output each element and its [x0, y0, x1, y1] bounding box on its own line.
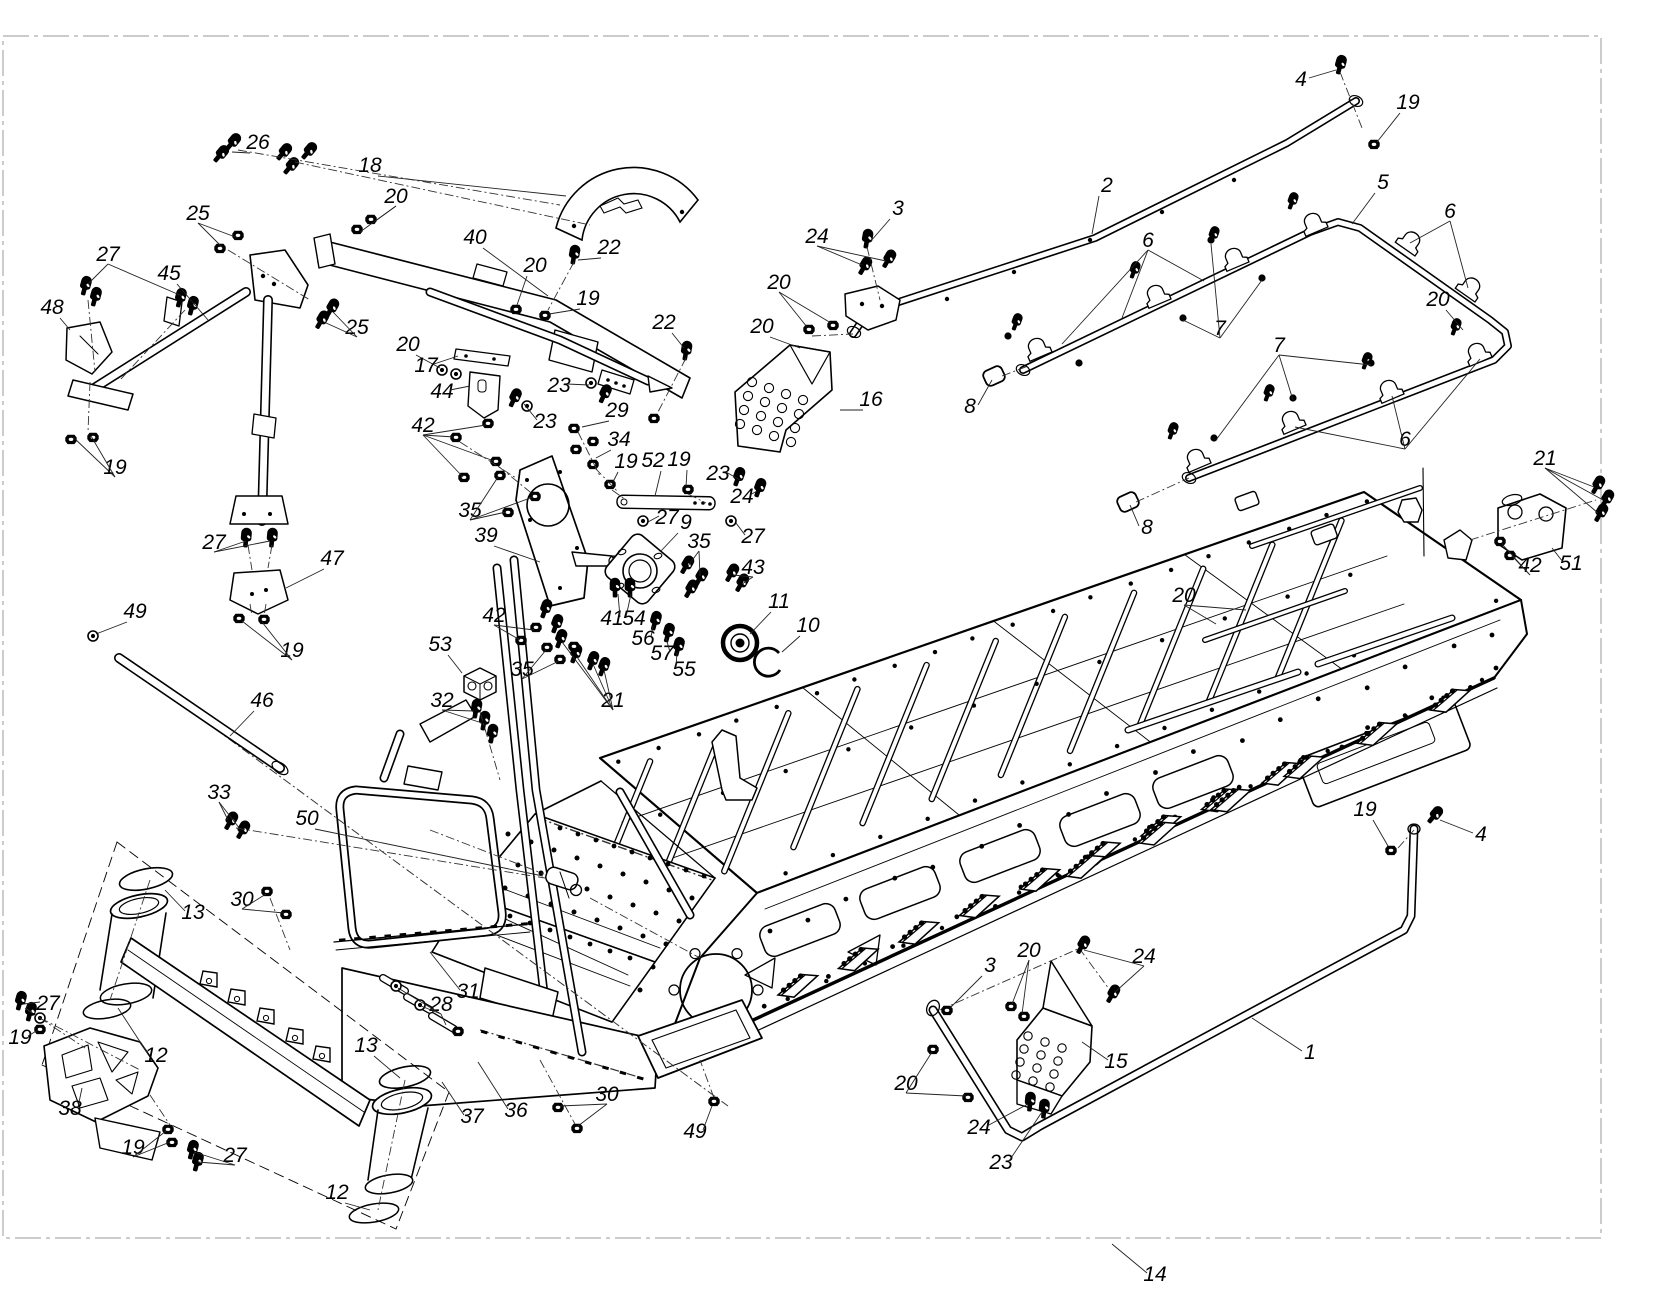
svg-text:1: 1	[1304, 1041, 1316, 1064]
svg-text:47: 47	[320, 547, 345, 570]
svg-text:44: 44	[430, 380, 453, 403]
svg-text:29: 29	[604, 399, 629, 422]
svg-text:19: 19	[121, 1136, 145, 1159]
svg-text:25: 25	[185, 202, 210, 225]
svg-text:20: 20	[395, 333, 420, 356]
svg-text:20: 20	[1425, 288, 1450, 311]
svg-text:22: 22	[651, 311, 676, 334]
svg-text:23: 23	[988, 1151, 1013, 1174]
svg-text:20: 20	[1171, 584, 1196, 607]
svg-text:27: 27	[654, 506, 680, 529]
svg-text:4: 4	[1475, 823, 1487, 846]
svg-text:19: 19	[576, 287, 600, 310]
svg-text:24: 24	[966, 1116, 990, 1139]
svg-text:18: 18	[358, 154, 382, 177]
svg-text:55: 55	[672, 658, 696, 681]
svg-text:34: 34	[607, 428, 630, 451]
svg-text:20: 20	[383, 185, 408, 208]
svg-text:10: 10	[796, 614, 820, 637]
svg-text:13: 13	[181, 901, 205, 924]
svg-text:48: 48	[40, 296, 64, 319]
svg-text:39: 39	[474, 524, 498, 547]
svg-text:53: 53	[428, 633, 452, 656]
svg-text:22: 22	[596, 236, 621, 259]
svg-text:6: 6	[1444, 200, 1456, 223]
svg-text:52: 52	[641, 449, 665, 472]
svg-text:57: 57	[650, 642, 675, 665]
svg-text:38: 38	[58, 1097, 82, 1120]
svg-text:49: 49	[683, 1120, 707, 1143]
svg-text:14: 14	[1143, 1263, 1166, 1286]
svg-text:12: 12	[144, 1044, 168, 1067]
svg-text:5: 5	[1377, 171, 1389, 194]
svg-text:23: 23	[705, 462, 730, 485]
svg-text:19: 19	[614, 450, 638, 473]
svg-text:23: 23	[532, 410, 557, 433]
svg-text:26: 26	[245, 131, 270, 154]
svg-text:19: 19	[1396, 91, 1420, 114]
svg-text:7: 7	[1273, 334, 1286, 357]
svg-text:6: 6	[1142, 229, 1154, 252]
svg-text:30: 30	[230, 888, 254, 911]
svg-text:12: 12	[325, 1181, 349, 1204]
svg-text:19: 19	[103, 456, 127, 479]
svg-text:33: 33	[207, 781, 231, 804]
svg-text:3: 3	[892, 197, 904, 220]
svg-text:3: 3	[984, 954, 996, 977]
svg-text:19: 19	[667, 448, 691, 471]
svg-text:21: 21	[1532, 447, 1556, 470]
svg-text:35: 35	[687, 530, 711, 553]
svg-text:51: 51	[1559, 552, 1582, 575]
svg-text:20: 20	[522, 254, 547, 277]
svg-text:41: 41	[600, 607, 623, 630]
svg-text:24: 24	[1131, 945, 1155, 968]
svg-text:35: 35	[510, 658, 534, 681]
svg-text:11: 11	[768, 590, 790, 613]
svg-text:36: 36	[504, 1099, 528, 1122]
svg-text:37: 37	[460, 1105, 485, 1128]
svg-text:2: 2	[1100, 174, 1113, 197]
svg-text:45: 45	[157, 262, 181, 285]
svg-text:19: 19	[8, 1026, 32, 1049]
svg-text:20: 20	[766, 271, 791, 294]
svg-text:24: 24	[729, 485, 753, 508]
svg-text:49: 49	[123, 600, 147, 623]
svg-text:27: 27	[222, 1144, 248, 1167]
svg-text:16: 16	[859, 388, 883, 411]
svg-text:23: 23	[546, 374, 571, 397]
svg-text:43: 43	[741, 556, 765, 579]
svg-text:31: 31	[456, 980, 479, 1003]
svg-text:40: 40	[463, 226, 487, 249]
svg-text:19: 19	[1353, 798, 1377, 821]
svg-text:20: 20	[1016, 939, 1041, 962]
svg-text:17: 17	[414, 354, 439, 377]
svg-text:30: 30	[595, 1083, 619, 1106]
svg-text:27: 27	[35, 992, 61, 1015]
svg-text:8: 8	[964, 395, 976, 418]
svg-text:27: 27	[95, 243, 121, 266]
svg-text:15: 15	[1104, 1050, 1128, 1073]
svg-text:42: 42	[482, 604, 506, 627]
svg-text:32: 32	[430, 689, 454, 712]
svg-text:24: 24	[804, 225, 828, 248]
svg-text:19: 19	[280, 639, 304, 662]
svg-text:13: 13	[354, 1034, 378, 1057]
svg-text:4: 4	[1295, 68, 1307, 91]
svg-text:8: 8	[1141, 516, 1153, 539]
svg-text:46: 46	[250, 689, 274, 712]
svg-text:50: 50	[295, 807, 319, 830]
svg-text:28: 28	[428, 993, 453, 1016]
svg-text:20: 20	[749, 315, 774, 338]
svg-text:27: 27	[740, 525, 766, 548]
svg-text:20: 20	[893, 1072, 918, 1095]
